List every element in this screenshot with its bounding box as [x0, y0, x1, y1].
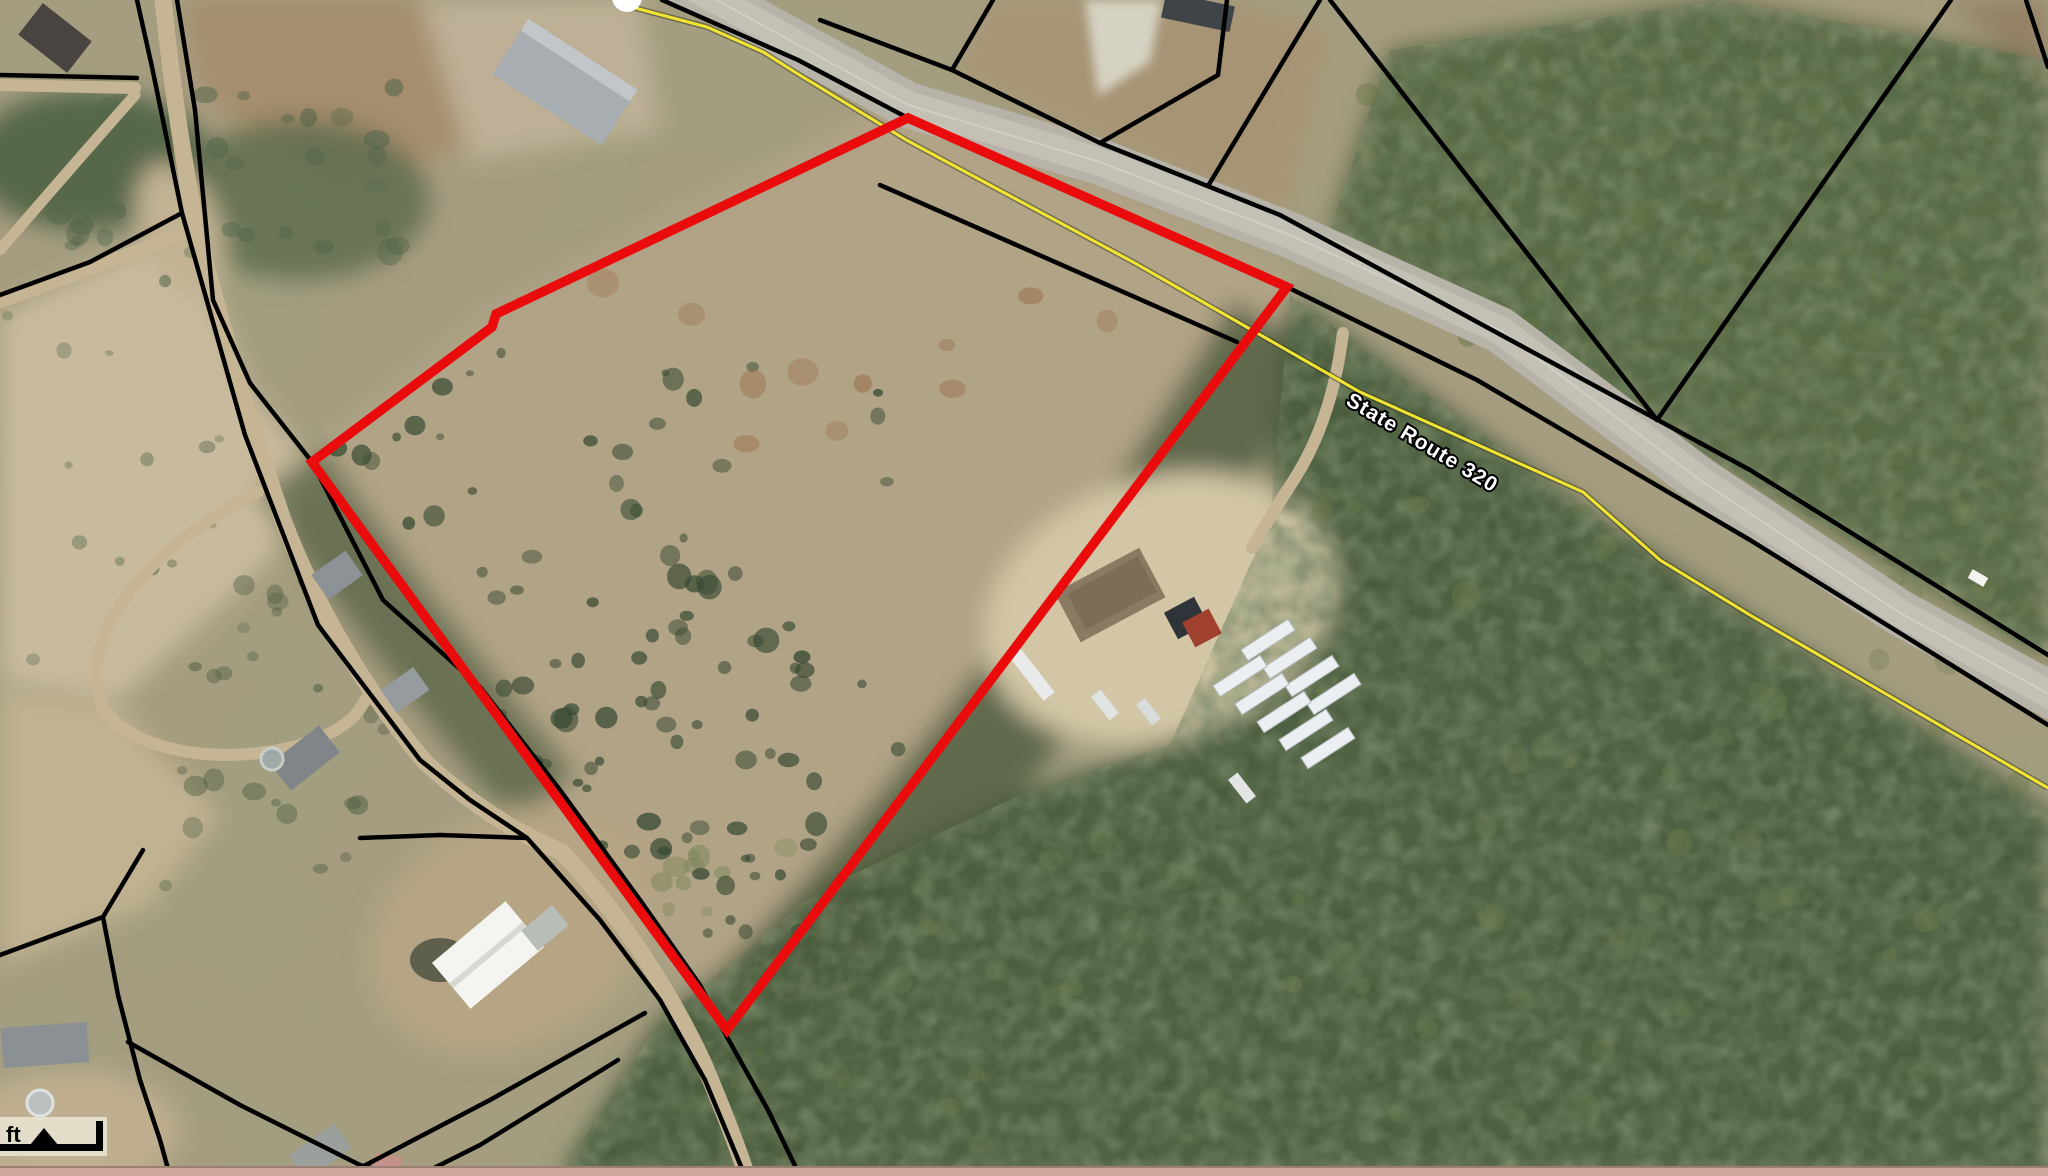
- tree-blob: [1523, 280, 1547, 306]
- tree-blob: [1292, 893, 1306, 907]
- tree-blob: [167, 559, 177, 567]
- tree-blob: [782, 621, 795, 631]
- tree-blob: [656, 717, 676, 733]
- tree-blob: [1888, 479, 1905, 492]
- tree-blob: [873, 389, 883, 397]
- tree-blob: [746, 709, 759, 722]
- tree-blob: [1631, 927, 1652, 948]
- tree-blob: [313, 864, 328, 874]
- tree-blob: [313, 240, 333, 254]
- tree-blob: [662, 856, 689, 877]
- tree-blob: [363, 452, 380, 470]
- tree-blob: [703, 928, 713, 938]
- tree-blob: [392, 433, 401, 442]
- tree-blob: [386, 237, 410, 256]
- tree-blob: [1822, 347, 1835, 357]
- tree-blob: [624, 845, 640, 859]
- tree-blob: [1508, 991, 1533, 1009]
- tree-blob: [1345, 500, 1362, 516]
- tree-blob: [468, 487, 478, 495]
- scalebar-expand-arrow-icon[interactable]: [30, 1128, 58, 1145]
- map-canvas[interactable]: State Route 320: [0, 0, 2048, 1176]
- tree-blob: [790, 676, 811, 692]
- tree-blob: [792, 901, 806, 913]
- tree-blob: [1805, 97, 1825, 119]
- tree-blob: [870, 408, 885, 425]
- tree-blob: [2, 311, 13, 321]
- tree-blob: [1223, 1098, 1236, 1112]
- tree-blob: [1951, 504, 1976, 527]
- tree-blob: [247, 652, 259, 662]
- tree-blob: [1475, 815, 1497, 838]
- tree-blob: [1755, 892, 1783, 914]
- tree-blob: [550, 659, 562, 669]
- tree-blob: [193, 86, 218, 103]
- tree-blob: [1521, 36, 1543, 58]
- tree-blob: [968, 1067, 985, 1082]
- tree-blob: [313, 684, 323, 693]
- tree-blob: [105, 350, 114, 356]
- tree-blob: [277, 804, 298, 824]
- tree-blob: [242, 783, 266, 801]
- tree-blob: [215, 666, 232, 680]
- tree-blob: [678, 1094, 702, 1116]
- tree-blob: [1883, 266, 1899, 285]
- tree-blob: [826, 421, 849, 441]
- tree-blob: [1711, 729, 1735, 747]
- tree-blob: [986, 964, 1009, 980]
- tree-blob: [1882, 948, 1896, 961]
- tree-blob: [692, 720, 703, 729]
- tree-blob: [432, 378, 453, 396]
- tree-blob: [701, 907, 713, 917]
- tree-blob: [667, 564, 691, 590]
- tree-blob: [1416, 1018, 1437, 1039]
- tree-blob: [1123, 910, 1138, 923]
- tree-blob: [573, 779, 584, 787]
- tree-blob: [753, 1049, 766, 1059]
- tree-blob: [1478, 905, 1506, 932]
- tree-blob: [225, 157, 245, 170]
- tree-blob: [375, 221, 391, 238]
- tree-blob: [1885, 144, 1905, 159]
- tree-blob: [787, 358, 818, 386]
- tree-blob: [1851, 88, 1867, 100]
- tree-blob: [916, 878, 931, 892]
- tree-blob: [1845, 742, 1859, 753]
- tree-blob: [512, 677, 534, 695]
- tree-blob: [1280, 976, 1302, 992]
- tree-blob: [1503, 748, 1528, 774]
- tree-blob: [46, 206, 71, 225]
- tree-blob: [778, 753, 800, 767]
- tree-blob: [670, 735, 683, 749]
- tree-blob: [1605, 94, 1629, 114]
- tree-blob: [177, 766, 187, 775]
- tree-blob: [1742, 81, 1767, 99]
- footer-bar: [0, 1166, 2048, 1176]
- tree-blob: [1914, 910, 1940, 933]
- tree-blob: [649, 418, 666, 430]
- tree-blob: [1043, 985, 1068, 1007]
- tree-blob: [609, 475, 624, 492]
- tree-blob: [1770, 654, 1789, 671]
- tree-blob: [663, 368, 684, 391]
- aerial-imagery: [0, 0, 2048, 1176]
- tree-blob: [271, 799, 281, 807]
- tree-blob: [404, 416, 425, 436]
- tree-blob: [1018, 287, 1043, 304]
- tree-blob: [1803, 267, 1817, 283]
- tree-blob: [826, 1060, 850, 1084]
- tree-blob: [630, 504, 643, 518]
- tree-blob: [1677, 304, 1702, 332]
- tree-blob: [159, 275, 171, 288]
- tree-blob: [522, 550, 543, 564]
- tree-blob: [692, 868, 709, 880]
- tree-blob: [928, 922, 952, 937]
- tree-blob: [365, 178, 387, 192]
- tree-blob: [305, 149, 324, 166]
- tree-blob: [1701, 25, 1718, 37]
- tree-blob: [1388, 1107, 1401, 1121]
- tree-blob: [1222, 893, 1239, 907]
- tree-blob: [1758, 687, 1787, 720]
- tree-blob: [1502, 1106, 1524, 1123]
- tree-blob: [1597, 30, 1615, 43]
- tree-blob: [1645, 893, 1666, 909]
- tree-blob: [1662, 764, 1677, 779]
- tree-blob: [1616, 237, 1629, 247]
- tree-blob: [794, 650, 811, 663]
- tree-blob: [1880, 48, 1895, 62]
- tree-blob: [680, 611, 694, 621]
- tree-blob: [1938, 903, 1954, 920]
- tree-blob: [663, 902, 676, 916]
- tree-blob: [660, 545, 680, 566]
- tree-blob: [1097, 310, 1118, 333]
- tree-blob: [97, 228, 114, 247]
- tree-blob: [1958, 171, 1977, 189]
- tree-blob: [1869, 649, 1890, 671]
- tree-blob: [718, 661, 731, 674]
- tree-blob: [631, 651, 647, 665]
- tree-blob: [1456, 188, 1473, 202]
- tree-blob: [806, 772, 822, 790]
- tree-blob: [582, 785, 591, 793]
- tree-blob: [1771, 125, 1785, 135]
- tree-blob: [775, 869, 786, 880]
- tree-blob: [26, 653, 40, 665]
- tree-blob: [115, 557, 125, 566]
- scalebar: ft: [0, 1117, 107, 1156]
- tree-blob: [774, 838, 798, 857]
- tree-blob: [278, 226, 292, 239]
- tree-blob: [267, 593, 289, 611]
- tree-blob: [1335, 948, 1359, 972]
- tree-blob: [237, 91, 250, 101]
- tree-blob: [1908, 1065, 1927, 1080]
- tree-blob: [635, 696, 647, 708]
- tree-blob: [1955, 261, 1970, 277]
- tree-blob: [936, 1098, 962, 1116]
- tree-blob: [1767, 55, 1781, 67]
- tree-blob: [237, 622, 250, 633]
- tree-blob: [215, 435, 224, 442]
- tree-blob: [854, 374, 872, 393]
- tree-blob: [1590, 651, 1602, 661]
- tree-blob: [1608, 579, 1633, 603]
- tree-blob: [583, 435, 598, 446]
- tree-blob: [690, 820, 710, 835]
- tree-blob: [199, 441, 216, 454]
- tree-blob: [477, 567, 488, 578]
- tree-blob: [1667, 828, 1692, 856]
- tree-blob: [678, 303, 705, 326]
- tree-blob: [971, 1133, 994, 1153]
- tree-blob: [733, 435, 759, 452]
- tree-blob: [140, 452, 154, 466]
- tree-blob: [1572, 1094, 1600, 1124]
- tree-blob: [57, 342, 72, 359]
- tree-blob: [206, 137, 228, 159]
- tree-blob: [203, 768, 224, 791]
- tree-blob: [1653, 662, 1667, 673]
- tree-blob: [385, 79, 403, 97]
- tree-blob: [340, 852, 351, 862]
- tree-blob: [740, 369, 766, 398]
- tree-blob: [595, 707, 617, 729]
- tree-blob: [1039, 850, 1062, 871]
- tree-blob: [857, 680, 866, 689]
- tree-blob: [72, 535, 87, 549]
- tree-blob: [1312, 501, 1332, 520]
- tree-blob: [1356, 83, 1380, 107]
- tree-blob: [716, 876, 735, 895]
- tree-blob: [612, 444, 633, 460]
- tree-blob: [888, 855, 904, 866]
- tree-blob: [300, 108, 317, 127]
- tree-blob: [753, 628, 779, 653]
- tree-blob: [1632, 199, 1653, 221]
- tree-blob: [1509, 178, 1522, 189]
- tree-blob: [1860, 322, 1885, 348]
- tree-blob: [682, 832, 693, 843]
- tree-blob: [497, 348, 506, 359]
- tree-blob: [800, 838, 817, 851]
- tree-blob: [889, 972, 913, 993]
- tree-blob: [466, 370, 474, 376]
- tree-blob: [403, 517, 416, 530]
- tree-blob: [712, 459, 731, 473]
- tree-blob: [1593, 534, 1618, 558]
- tree-blob: [880, 477, 894, 486]
- tree-blob: [735, 751, 757, 770]
- tree-blob: [65, 461, 73, 469]
- tree-blob: [1452, 580, 1480, 612]
- tree-blob: [1197, 1089, 1225, 1107]
- tree-blob: [1563, 755, 1576, 768]
- tree-blob: [368, 146, 386, 166]
- tree-blob: [1653, 128, 1674, 142]
- tree-blob: [697, 575, 722, 600]
- tree-blob: [675, 876, 691, 891]
- tree-blob: [637, 813, 661, 831]
- tree-blob: [423, 505, 444, 526]
- tree-blob: [1392, 105, 1407, 118]
- tree-blob: [584, 762, 598, 776]
- tree-blob: [331, 108, 354, 127]
- tree-blob: [686, 389, 702, 407]
- tree-blob: [646, 629, 659, 643]
- pond: [261, 748, 283, 770]
- tree-blob: [1127, 931, 1144, 945]
- tree-blob: [750, 872, 761, 881]
- tree-blob: [658, 846, 671, 855]
- tree-blob: [1573, 188, 1595, 212]
- scalebar-border-horizontal: [0, 1144, 103, 1151]
- tree-blob: [554, 707, 578, 732]
- tree-blob: [1532, 736, 1556, 756]
- tree-blob: [1354, 978, 1371, 995]
- tree-blob: [1788, 329, 1800, 339]
- tree-blob: [496, 680, 513, 698]
- tree-blob: [1704, 318, 1718, 331]
- tree-blob: [1594, 553, 1609, 564]
- tree-blob: [65, 240, 80, 250]
- tree-blob: [59, 110, 73, 120]
- tree-blob: [805, 812, 827, 836]
- tree-blob: [795, 662, 815, 677]
- tree-blob: [1817, 119, 1834, 136]
- tree-blob: [281, 114, 294, 123]
- tree-blob: [739, 924, 753, 939]
- pool: [27, 1090, 53, 1116]
- tree-blob: [1977, 770, 2001, 786]
- tree-blob: [1407, 496, 1431, 512]
- tree-blob: [1591, 1038, 1614, 1059]
- tree-blob: [571, 653, 585, 668]
- tree-blob: [113, 203, 127, 218]
- tree-blob: [891, 742, 906, 756]
- tree-blob: [727, 822, 748, 836]
- tree-blob: [1165, 865, 1193, 892]
- tree-blob: [1610, 930, 1626, 947]
- tree-blob: [939, 339, 955, 351]
- tree-blob: [347, 795, 368, 815]
- tree-blob: [741, 855, 751, 863]
- tree-blob: [488, 591, 506, 605]
- tree-blob: [183, 817, 203, 839]
- tree-blob: [587, 597, 599, 607]
- tree-blob: [765, 748, 776, 759]
- tree-blob: [1735, 828, 1763, 850]
- tree-blob: [680, 533, 688, 542]
- house-roof: [1, 1022, 90, 1068]
- map-viewport: State Route 320 ft: [0, 0, 2048, 1176]
- tree-blob: [1703, 800, 1718, 810]
- tree-blob: [1089, 832, 1112, 854]
- tree-blob: [436, 433, 444, 440]
- tree-blob: [668, 619, 688, 635]
- tree-blob: [1838, 321, 1861, 341]
- tree-blob: [159, 880, 172, 892]
- tree-blob: [189, 662, 202, 671]
- tree-blob: [1673, 1000, 1692, 1017]
- tree-blob: [728, 566, 743, 581]
- tree-blob: [1573, 504, 1594, 518]
- tree-blob: [1179, 1132, 1193, 1143]
- tree-blob: [939, 380, 966, 398]
- tree-blob: [222, 222, 241, 237]
- tree-blob: [510, 585, 524, 594]
- tree-blob: [1695, 248, 1714, 266]
- tree-blob: [233, 575, 254, 595]
- tree-blob: [70, 215, 93, 236]
- tree-blob: [725, 915, 735, 925]
